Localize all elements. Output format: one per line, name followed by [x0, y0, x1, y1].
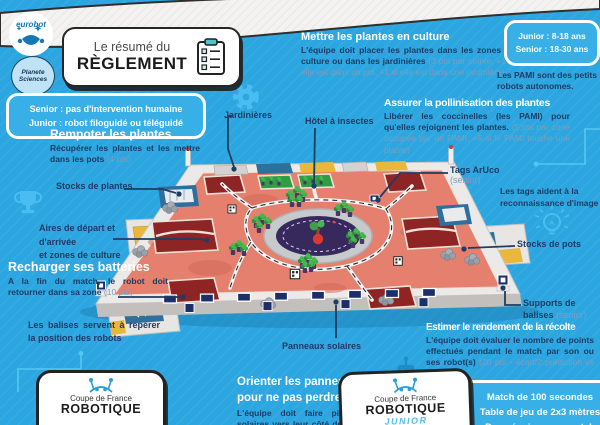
- label-supports-balises: Supports de balises (senior): [523, 297, 587, 321]
- age-categories-badge: Junior : 8-18 ans Senior : 18-30 ans: [504, 20, 600, 66]
- age-junior: Junior : 8-18 ans: [518, 30, 586, 43]
- aires-line2: d'arrivée: [39, 236, 169, 250]
- coupe-de-france-logo-card: Coupe de France ROBOTIQUE: [36, 370, 166, 425]
- label-panneaux-solaires: Panneaux solaires: [282, 341, 361, 351]
- section-title: Assurer la pollinisation des plantes: [384, 97, 594, 109]
- coupe-line2: ROBOTIQUE: [61, 403, 141, 416]
- note-tags: Les tags aident à la reconnaissance d'im…: [500, 186, 600, 210]
- section-rempoter: Rempoter les plantes Récupérer les plant…: [50, 127, 208, 165]
- title-line1: Le résumé du: [77, 40, 187, 54]
- clipboard-icon: [196, 38, 226, 76]
- planete-sciences-circle: Planete Sciences: [11, 56, 55, 96]
- tags-aruco-text: Tags ArUco: [450, 165, 500, 175]
- section-points: (10 pts): [104, 287, 133, 297]
- supports-line1: Supports de: [523, 297, 587, 309]
- supports-line2: balises: [523, 310, 554, 320]
- match-table-size: Table de jeu de 2x3 mètres: [480, 405, 600, 420]
- section-mettre-plantes: Mettre les plantes en culture L'équipe d…: [301, 31, 515, 79]
- coupe-junior-line3: JUNIOR: [384, 415, 427, 425]
- aires-line3: et zones de culture: [39, 249, 169, 263]
- label-tags-aruco: Tags ArUco (senior): [450, 165, 500, 185]
- trophy-icon: [15, 191, 41, 213]
- match-duration: Match de 100 secondes: [487, 390, 593, 405]
- robot-face-icon: [86, 377, 116, 393]
- label-stocks-pots: Stocks de pots: [517, 239, 581, 249]
- section-title: Rempoter les plantes: [50, 127, 208, 141]
- connector-hotel: [314, 128, 315, 184]
- age-senior: Senior : 18-30 ans: [516, 43, 589, 56]
- supports-senior: (senior): [556, 310, 587, 320]
- section-title: Estimer le rendement de la récolte: [426, 322, 598, 333]
- match-info-badge: Match de 100 secondes Table de jeu de 2x…: [458, 380, 600, 425]
- eurobot-logo-graphic: [8, 11, 54, 57]
- section-pollinisation: Assurer la pollinisation des plantes Lib…: [384, 97, 594, 156]
- title-card: Le résumé du RÈGLEMENT: [62, 27, 241, 87]
- eurobot-wordmark: eurobot: [8, 20, 54, 29]
- section-title: Mettre les plantes en culture: [301, 31, 515, 43]
- aruco-tag: [394, 257, 403, 266]
- poster-reglement: eurobot Planete Sciences une aventure po…: [0, 0, 600, 425]
- label-jardinieres: Jardinières: [224, 110, 272, 120]
- title-line2: RÈGLEMENT: [77, 54, 187, 74]
- label-hotel-insectes: Hôtel à insectes: [305, 116, 374, 126]
- note-pami: Les PAMI sont des petits robots autonome…: [497, 70, 600, 93]
- label-stocks-plantes: Stocks de plantes: [56, 181, 133, 191]
- connector-jardinieres: [228, 116, 234, 167]
- rule-senior: Senior : pas d'intervention humaine: [30, 102, 183, 116]
- eurobot-logo: eurobot: [8, 11, 54, 57]
- planete-line2: Sciences: [12, 76, 54, 83]
- aires-line1: Aires de départ et: [39, 222, 169, 236]
- page-title: Le résumé du RÈGLEMENT: [77, 40, 187, 74]
- section-body: A la fin du match, le robot doit retourn…: [8, 276, 168, 297]
- aruco-tag: [290, 269, 299, 278]
- section-recharger: Recharger ses batteries A la fin du matc…: [8, 260, 176, 298]
- aruco-tag: [228, 205, 236, 213]
- match-teams: Deux équipes par match: [485, 420, 595, 425]
- robot-face-icon: [389, 376, 420, 393]
- coupe-de-france-junior-logo-card: Coupe de France ROBOTIQUE JUNIOR: [338, 368, 474, 425]
- note-balises: Les balises servent à repérer la positio…: [28, 319, 160, 344]
- tags-aruco-senior: (senior): [450, 175, 500, 185]
- planete-line1: Planete: [12, 69, 54, 76]
- section-points: (4 pts): [107, 154, 131, 164]
- note-aires-depart: Aires de départ et d'arrivée et zones de…: [39, 222, 169, 263]
